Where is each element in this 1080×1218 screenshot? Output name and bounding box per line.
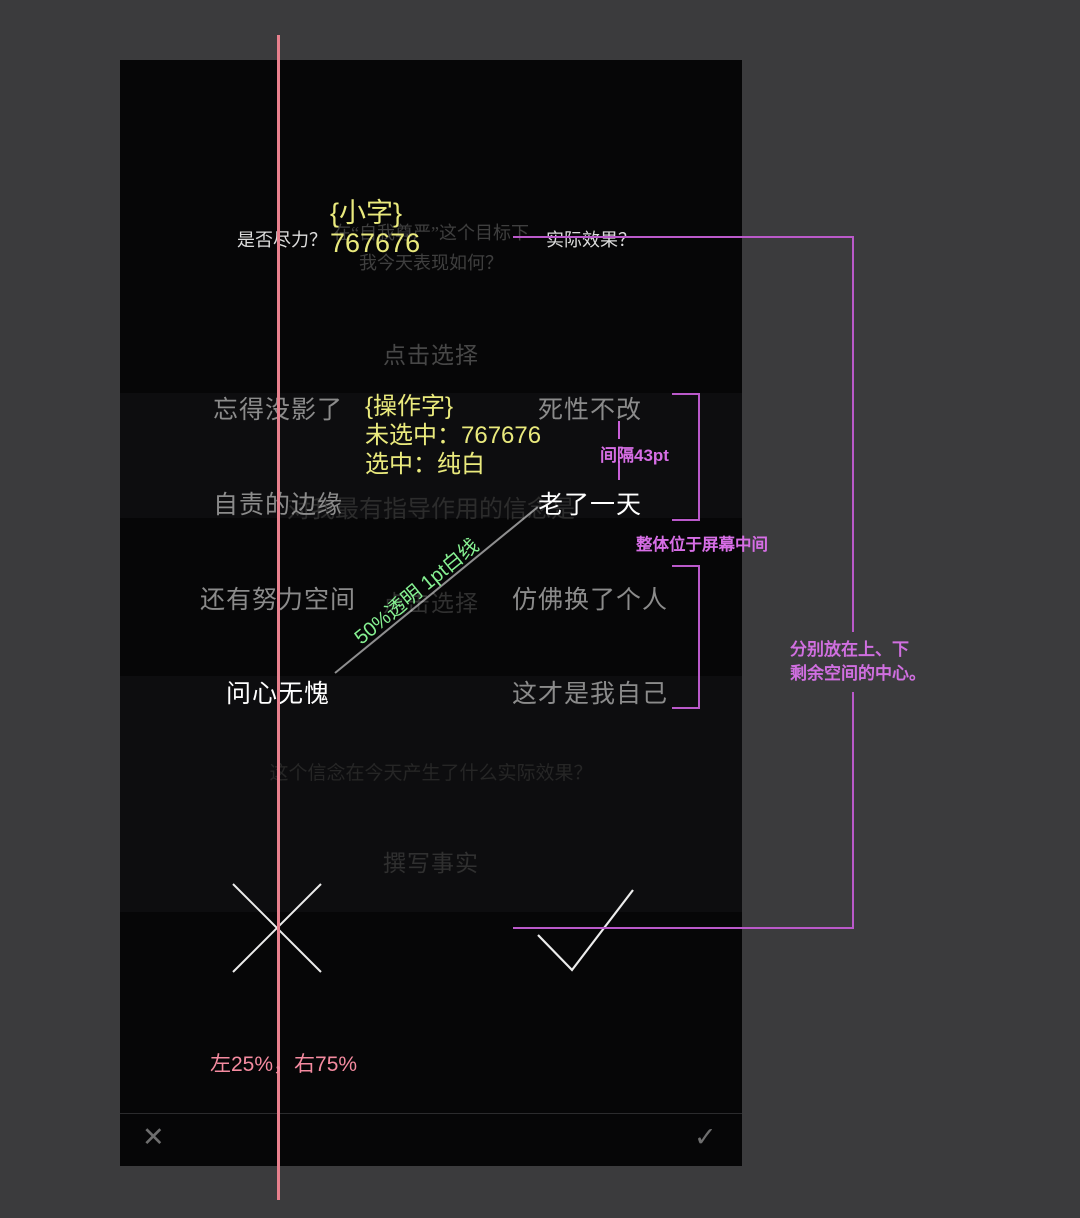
spacing-note: 分别放在上、下 剩余空间的中心。 [790, 638, 926, 686]
gap-label: 间隔43pt [600, 441, 669, 466]
top-question-line1: 在“自我尊严”这个目标下 [120, 218, 742, 248]
split-label: 左25%，右75% [210, 1048, 357, 1078]
design-spec-canvas: 在“自我尊严”这个目标下 我今天表现如何？ 是否尽力？ 实际效果？ 点击选择 对… [0, 0, 1080, 1218]
lower-group-bracket [672, 565, 700, 709]
label-effort: 是否尽力？ [237, 226, 327, 252]
spacing-note-line1: 分别放在上、下 [790, 638, 926, 662]
action-text-annotation: {操作字} 未选中：767676 选中：纯白 [365, 392, 541, 479]
write-facts-prompt: 撰写事实 [120, 844, 742, 878]
right-connector-line-upper [852, 236, 854, 632]
gap-marker-line-top [618, 421, 620, 439]
action-text-title: {操作字} [365, 392, 541, 421]
upper-group-bracket [672, 393, 700, 521]
split-guide-line [277, 35, 280, 1200]
small-text-annotation: {小字} 767676 [330, 198, 420, 258]
cancel-button[interactable]: ✕ [142, 1122, 165, 1153]
phone-screen: 在“自我尊严”这个目标下 我今天表现如何？ 是否尽力？ 实际效果？ 点击选择 对… [120, 60, 742, 1166]
action-text-selected: 选中：纯白 [365, 450, 541, 479]
effect-question: 这个信念在今天产生了什么实际效果？ [120, 758, 742, 785]
check-mark-icon[interactable] [534, 886, 638, 978]
bottom-bar-divider [120, 1113, 742, 1114]
top-question: 在“自我尊严”这个目标下 我今天表现如何？ [120, 218, 742, 278]
label-actual-effect: 实际效果？ [546, 226, 636, 252]
small-text-title: {小字} [330, 198, 420, 228]
spacing-note-line2: 剩余空间的中心。 [790, 662, 926, 686]
small-text-value: 767676 [330, 228, 420, 258]
confirm-button[interactable]: ✓ [694, 1122, 717, 1153]
bottom-connector-line [513, 927, 854, 929]
center-of-screen-label: 整体位于屏幕中间 [636, 531, 768, 555]
action-text-unselected: 未选中：767676 [365, 421, 541, 450]
select-prompt-1: 点击选择 [120, 336, 742, 370]
right-connector-line-lower [852, 692, 854, 928]
top-question-line2: 我今天表现如何？ [120, 248, 742, 278]
top-connector-line [513, 236, 854, 238]
